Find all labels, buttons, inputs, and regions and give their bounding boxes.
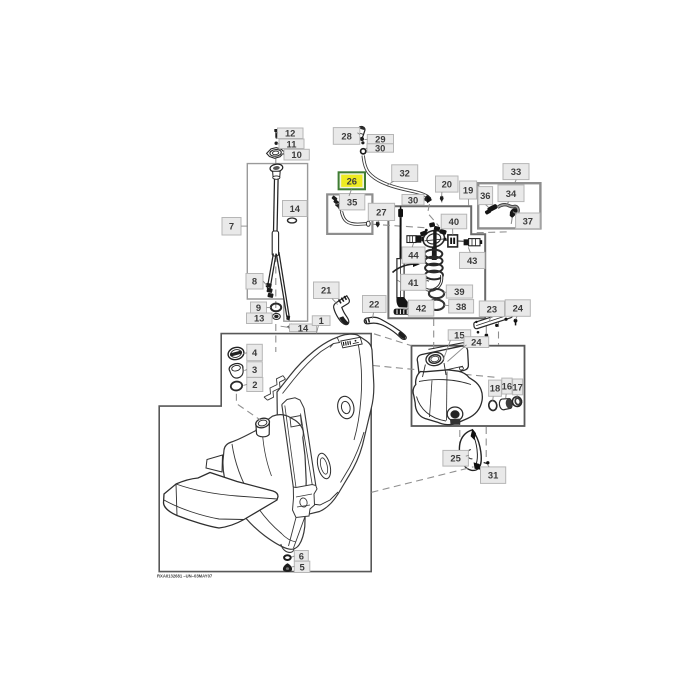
svg-text:24: 24 bbox=[471, 337, 482, 348]
svg-text:28: 28 bbox=[341, 130, 351, 141]
svg-text:13: 13 bbox=[254, 313, 264, 324]
svg-text:35: 35 bbox=[347, 196, 357, 207]
svg-text:38: 38 bbox=[456, 301, 466, 312]
svg-text:31: 31 bbox=[488, 470, 498, 481]
svg-text:40: 40 bbox=[449, 216, 459, 227]
svg-text:8: 8 bbox=[252, 276, 257, 287]
svg-text:23: 23 bbox=[487, 303, 497, 314]
svg-text:20: 20 bbox=[442, 179, 452, 190]
svg-text:10: 10 bbox=[291, 149, 301, 160]
svg-text:41: 41 bbox=[408, 277, 418, 288]
svg-text:25: 25 bbox=[450, 453, 460, 464]
svg-text:18: 18 bbox=[490, 383, 500, 394]
svg-text:2: 2 bbox=[252, 379, 257, 390]
svg-text:26: 26 bbox=[347, 176, 357, 187]
svg-text:14: 14 bbox=[290, 203, 301, 214]
svg-text:30: 30 bbox=[408, 194, 418, 205]
svg-text:42: 42 bbox=[416, 303, 426, 314]
svg-text:12: 12 bbox=[285, 128, 295, 139]
svg-text:22: 22 bbox=[369, 299, 379, 310]
svg-text:15: 15 bbox=[454, 330, 464, 341]
svg-text:27: 27 bbox=[376, 206, 386, 217]
svg-text:9: 9 bbox=[256, 302, 261, 313]
svg-text:37: 37 bbox=[523, 215, 533, 226]
svg-text:34: 34 bbox=[506, 188, 517, 199]
svg-text:14: 14 bbox=[298, 322, 309, 333]
svg-text:30: 30 bbox=[375, 143, 385, 154]
svg-text:1: 1 bbox=[319, 315, 324, 326]
svg-text:24: 24 bbox=[513, 303, 524, 314]
svg-text:36: 36 bbox=[480, 190, 490, 201]
svg-text:6: 6 bbox=[299, 550, 304, 561]
svg-text:17: 17 bbox=[512, 381, 522, 392]
svg-text:4: 4 bbox=[252, 347, 258, 358]
svg-text:32: 32 bbox=[399, 168, 409, 179]
svg-text:5: 5 bbox=[299, 561, 304, 572]
svg-text:3: 3 bbox=[252, 364, 257, 375]
svg-text:19: 19 bbox=[463, 185, 473, 196]
svg-text:16: 16 bbox=[502, 381, 512, 392]
svg-text:43: 43 bbox=[467, 255, 477, 266]
svg-text:33: 33 bbox=[511, 166, 521, 177]
svg-text:11: 11 bbox=[287, 138, 297, 149]
svg-text:44: 44 bbox=[408, 250, 419, 261]
svg-text:21: 21 bbox=[321, 285, 331, 296]
svg-text:RXA0132681 –UN–03MAY07: RXA0132681 –UN–03MAY07 bbox=[157, 573, 213, 578]
svg-text:39: 39 bbox=[454, 286, 464, 297]
svg-text:7: 7 bbox=[229, 221, 234, 232]
